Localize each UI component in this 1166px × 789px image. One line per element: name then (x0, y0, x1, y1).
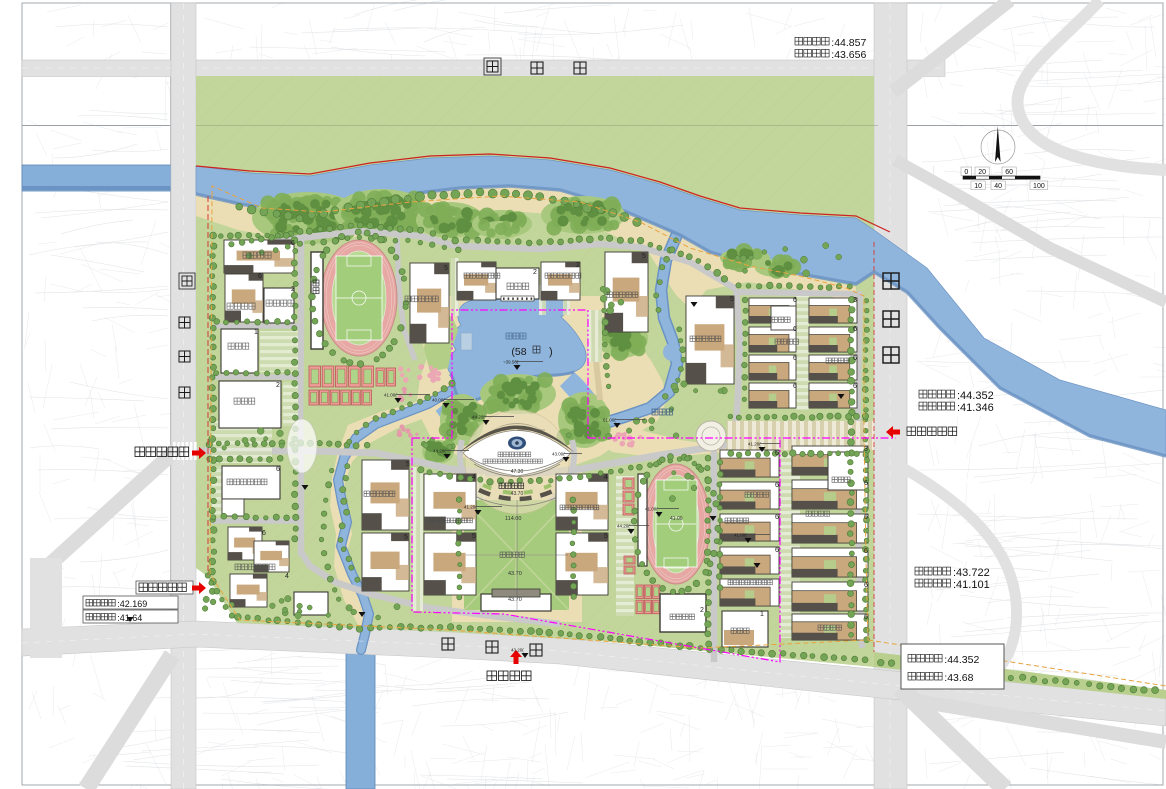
svg-text:6: 6 (793, 297, 797, 304)
svg-text:40: 40 (994, 183, 1002, 190)
svg-text:1: 1 (254, 329, 258, 336)
svg-text:114.00: 114.00 (505, 516, 521, 522)
svg-text:2: 2 (533, 269, 537, 276)
svg-text:6: 6 (262, 530, 266, 537)
svg-text:47.30: 47.30 (511, 469, 524, 475)
svg-text:41.00(: 41.00( (645, 507, 658, 512)
svg-text:100: 100 (1033, 183, 1045, 190)
svg-text:44.20(: 44.20( (433, 449, 446, 454)
svg-text::43.722: :43.722 (953, 567, 990, 579)
svg-text::44.857: :44.857 (831, 37, 866, 49)
svg-text:43.20(: 43.20( (511, 648, 524, 653)
svg-text:41.00(: 41.00( (384, 393, 397, 398)
svg-text:43.70: 43.70 (508, 597, 522, 603)
svg-text:5: 5 (642, 253, 646, 260)
svg-text::43.656: :43.656 (831, 49, 866, 61)
svg-text:6: 6 (775, 482, 779, 489)
svg-text:5: 5 (604, 533, 608, 540)
svg-text:6: 6 (864, 480, 868, 487)
svg-text:1: 1 (760, 611, 764, 618)
svg-text:41.00: 41.00 (670, 516, 683, 522)
svg-text:3: 3 (853, 297, 857, 304)
svg-text:6: 6 (864, 514, 868, 521)
svg-text:43.00(: 43.00( (552, 452, 565, 457)
svg-text:(58: (58 (511, 346, 526, 358)
svg-text:41.20(: 41.20( (748, 442, 761, 447)
svg-text:43.70: 43.70 (508, 571, 522, 577)
svg-text:6: 6 (793, 383, 797, 390)
svg-text:6: 6 (775, 450, 779, 457)
svg-text:6: 6 (864, 582, 868, 589)
svg-text:6: 6 (864, 614, 868, 621)
svg-text:5: 5 (472, 533, 476, 540)
svg-text:60: 60 (1005, 169, 1013, 176)
svg-text::43.68: :43.68 (944, 672, 973, 684)
svg-text:6: 6 (864, 548, 868, 555)
svg-text:6: 6 (291, 240, 295, 247)
svg-text:2: 2 (291, 286, 295, 293)
svg-text::42.169: :42.169 (117, 599, 147, 609)
svg-text::41.101: :41.101 (953, 579, 990, 591)
svg-text:3: 3 (864, 446, 868, 453)
svg-text:10: 10 (974, 183, 982, 190)
svg-text:): ) (549, 346, 553, 358)
svg-text:6: 6 (853, 355, 857, 362)
svg-text::41.346: :41.346 (957, 402, 994, 414)
svg-text:6: 6 (793, 355, 797, 362)
svg-text::44.352: :44.352 (957, 390, 994, 402)
svg-text:2: 2 (276, 382, 280, 389)
svg-text:5: 5 (730, 296, 734, 303)
svg-text:2: 2 (576, 262, 580, 269)
svg-text:6: 6 (258, 273, 262, 280)
svg-text:6: 6 (793, 326, 797, 333)
svg-text:4: 4 (472, 474, 476, 481)
svg-text:61.00(: 61.00( (603, 418, 616, 423)
svg-text:6: 6 (775, 547, 779, 554)
svg-text:41.20(: 41.20( (464, 505, 477, 510)
svg-text:43.70: 43.70 (511, 491, 524, 497)
svg-text:20: 20 (978, 169, 986, 176)
svg-text:6: 6 (853, 326, 857, 333)
svg-text:6: 6 (775, 514, 779, 521)
svg-text:5: 5 (404, 534, 408, 541)
svg-text:4: 4 (285, 573, 289, 580)
svg-text:44.20(: 44.20( (472, 415, 485, 420)
svg-text:6: 6 (853, 383, 857, 390)
svg-text:5: 5 (406, 461, 410, 468)
svg-text:0: 0 (964, 169, 968, 176)
svg-text:40.00(: 40.00( (432, 398, 445, 403)
svg-text:5: 5 (444, 265, 448, 272)
svg-text:6: 6 (276, 466, 280, 473)
svg-text:4: 4 (604, 474, 608, 481)
svg-text::44.352: :44.352 (944, 654, 979, 666)
svg-text:44.20(: 44.20( (617, 524, 630, 529)
svg-text:2: 2 (700, 607, 704, 614)
svg-text:41.00(: 41.00( (734, 533, 747, 538)
